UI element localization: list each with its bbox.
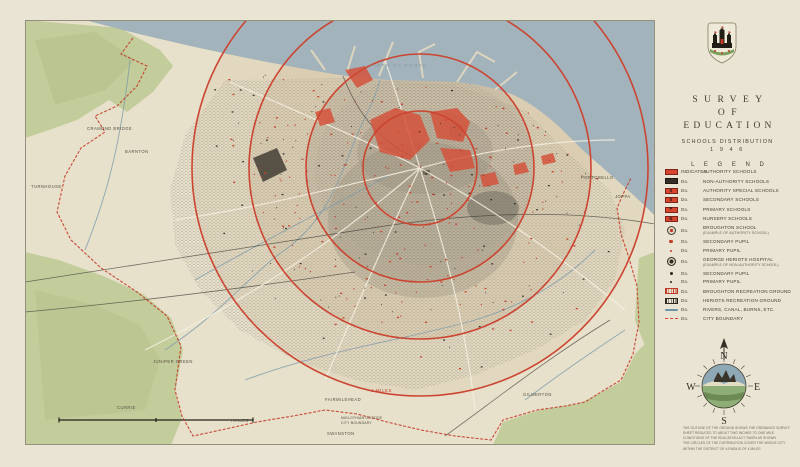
legend-list: INDICATESAUTHORITY SCHOOLSDo.NON-AUTHORI… <box>663 169 797 321</box>
legend-item: SDo.SECONDARY SCHOOLS <box>663 197 797 203</box>
legend-item: PDo.PRIMARY SCHOOLS <box>663 207 797 213</box>
map-label: PORTOBELLO <box>581 175 614 180</box>
map-label: JUNIPER GREEN <box>153 359 193 364</box>
map-sheet: FIRTH OF FORTHCRAMOND BRIDGEBARNTONTURNH… <box>0 0 800 467</box>
title-line-2: OF <box>661 108 800 118</box>
legend-item: NDo.NURSERY SCHOOLS <box>663 216 797 222</box>
legend-item: Do.BROUGHTON RECREATION GROUND <box>663 288 797 294</box>
year: 1 9 4 6 <box>655 147 800 153</box>
legend-title: L E G E N D <box>659 162 800 168</box>
legend-symbol-rect-red-solid <box>665 169 678 175</box>
map-label: MIDLOTHIAN OUTSIDE <box>341 416 383 420</box>
map-label: CITY BOUNDARY <box>341 421 372 425</box>
legend-item: Do.PRIMARY PUPIL <box>663 279 797 285</box>
legend-prefix: Do. <box>681 307 701 313</box>
map-label: 4 MILES <box>371 388 392 393</box>
legend-prefix: INDICATES <box>681 169 701 175</box>
legend-label: AUTHORITY SCHOOLS <box>703 169 797 175</box>
legend-symbol-rect-red-sec: S <box>665 197 678 203</box>
attribution-line: THE OUTLINE OF THE GROUND SHOWS THE ORDN… <box>683 426 797 436</box>
map-label: HAILES <box>231 418 249 423</box>
legend-symbol-line-red-dash <box>665 318 678 319</box>
map-label: BARNTON <box>125 149 149 154</box>
legend-symbol-badge-black <box>667 257 676 266</box>
legend-label: PRIMARY PUPIL <box>703 279 797 285</box>
legend-item: INDICATESAUTHORITY SCHOOLS <box>663 169 797 175</box>
legend-symbol-dot-black-lg <box>670 272 673 275</box>
legend-item: Do.RIVERS, CANAL, BURNS, ETC. <box>663 307 797 313</box>
title-block: SURVEY OF EDUCATION SCHOOLS DISTRIBUTION… <box>655 95 800 168</box>
legend-item: SDo.AUTHORITY SPECIAL SCHOOLS <box>663 188 797 194</box>
legend-symbol-line-blue <box>665 309 678 311</box>
legend-symbol-dot-red-sm <box>670 250 672 252</box>
legend-label: HERIOTS RECREATION GROUND <box>703 298 797 304</box>
compass-w: W <box>686 382 696 393</box>
legend-prefix: Do. <box>681 197 701 203</box>
legend-label: SECONDARY SCHOOLS <box>703 197 797 203</box>
compass-illustration <box>700 362 748 410</box>
compass-e: E <box>754 382 760 393</box>
legend-item: Do.PRIMARY PUPIL <box>663 248 797 254</box>
legend-prefix: Do. <box>681 188 701 194</box>
legend-label: SECONDARY PUPIL <box>703 271 797 277</box>
attribution-line: THE CIRCLES OF THE DISTRIBUTION COVER TH… <box>683 441 797 451</box>
map-label: GILMERTON <box>523 392 552 397</box>
legend-item: Do.SECONDARY PUPIL <box>663 271 797 277</box>
legend-prefix: Do. <box>681 289 701 295</box>
legend-symbol-rect-red-pri: P <box>665 207 678 213</box>
attribution: THE OUTLINE OF THE GROUND SHOWS THE ORDN… <box>683 426 797 452</box>
legend-item: Do.GEORGE HERIOTS HOSPITAL(EXAMPLE OF NO… <box>663 257 797 267</box>
legend-label: AUTHORITY SPECIAL SCHOOLS <box>703 188 797 194</box>
legend-label: CITY BOUNDARY <box>703 316 797 322</box>
legend-symbol-rect-red-nur: N <box>665 216 678 222</box>
legend-prefix: Do. <box>681 316 701 322</box>
legend-label: PRIMARY PUPIL <box>703 248 797 254</box>
compass-n: N <box>720 351 727 362</box>
legend-symbol-rect-black <box>665 178 678 184</box>
legend-label: PRIMARY SCHOOLS <box>703 207 797 213</box>
legend-symbol-dot-black-sm <box>670 281 672 283</box>
legend-prefix: Do. <box>681 248 701 254</box>
map-canvas: FIRTH OF FORTHCRAMOND BRIDGEBARNTONTURNH… <box>25 20 655 445</box>
legend-label: RIVERS, CANAL, BURNS, ETC. <box>703 307 797 313</box>
legend-prefix: Do. <box>681 179 701 185</box>
legend-label: BROUGHTON RECREATION GROUND <box>703 289 797 295</box>
legend-label: NON-AUTHORITY SCHOOLS <box>703 179 797 185</box>
legend-symbol-rect-red-s: S <box>665 188 678 194</box>
legend-prefix: Do. <box>681 279 701 285</box>
legend-label: SECONDARY PUPIL <box>703 239 797 245</box>
title-line-1: SURVEY <box>661 95 800 105</box>
legend-label: BROUGHTON SCHOOL(EXAMPLE OF AUTHORITY SC… <box>703 225 797 235</box>
legend-item: Do.HERIOTS RECREATION GROUND <box>663 298 797 304</box>
compass-rose: N E S W <box>676 334 772 430</box>
legend-item: Do.SECONDARY PUPIL <box>663 239 797 245</box>
legend-symbol-dot-red-lg <box>669 240 672 243</box>
legend-panel: SURVEY OF EDUCATION SCHOOLS DISTRIBUTION… <box>655 0 800 467</box>
map-label: FAIRMILEHEAD <box>325 397 361 402</box>
map-label: TURNHOUSE <box>31 184 62 189</box>
map-label: SWANSTON <box>327 431 355 436</box>
legend-prefix: Do. <box>681 228 701 234</box>
legend-label: GEORGE HERIOTS HOSPITAL(EXAMPLE OF NON-A… <box>703 257 797 267</box>
legend-label: NURSERY SCHOOLS <box>703 216 797 222</box>
map-label: JOPPA <box>615 194 631 199</box>
legend-prefix: Do. <box>681 298 701 304</box>
map-label: FIRTH OF FORTH <box>370 63 428 68</box>
city-crest <box>707 22 737 64</box>
legend-symbol-rect-red-hatch <box>665 288 678 294</box>
legend-prefix: Do. <box>681 216 701 222</box>
map-label: CURRIE <box>117 405 136 410</box>
legend-prefix: Do. <box>681 239 701 245</box>
legend-item: Do.NON-AUTHORITY SCHOOLS <box>663 178 797 184</box>
legend-prefix: Do. <box>681 271 701 277</box>
map-label: CRAMOND BRIDGE <box>87 126 132 131</box>
legend-symbol-badge-red <box>667 226 676 235</box>
legend-prefix: Do. <box>681 207 701 213</box>
legend-prefix: Do. <box>681 259 701 265</box>
legend-symbol-rect-black-hatch <box>665 298 678 304</box>
subtitle: SCHOOLS DISTRIBUTION <box>655 139 800 145</box>
title-line-3: EDUCATION <box>659 121 800 131</box>
legend-item: Do.CITY BOUNDARY <box>663 316 797 322</box>
legend-item: Do.BROUGHTON SCHOOL(EXAMPLE OF AUTHORITY… <box>663 225 797 235</box>
